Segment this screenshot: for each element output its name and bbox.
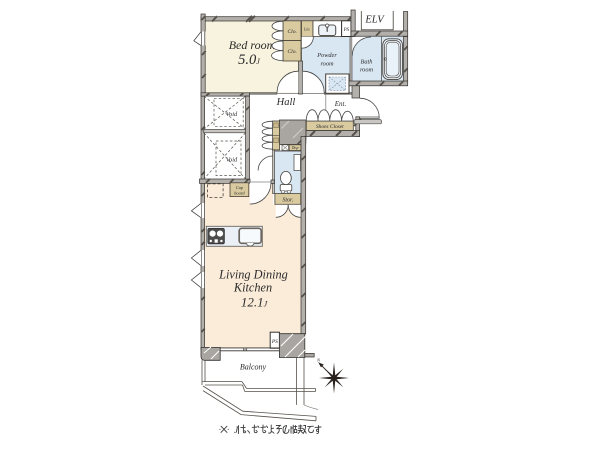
svg-text:Shoes Closet: Shoes Closet [316, 124, 344, 130]
svg-text:board: board [234, 190, 245, 195]
svg-text:12.1J: 12.1J [241, 295, 268, 310]
svg-text:Hall: Hall [276, 97, 296, 108]
svg-text:Living Dining: Living Dining [218, 268, 288, 282]
svg-text:Void: Void [226, 111, 238, 118]
svg-text:Bed room: Bed room [229, 38, 276, 52]
svg-text:Clo.: Clo. [287, 29, 296, 35]
svg-text:Powder: Powder [316, 52, 337, 59]
svg-text:Balcony: Balcony [240, 363, 267, 372]
svg-text:PS: PS [271, 339, 278, 345]
svg-text:Void: Void [226, 157, 238, 164]
svg-text:room: room [360, 67, 374, 74]
svg-text:Kitchen: Kitchen [233, 281, 272, 295]
svg-text:Bath: Bath [361, 59, 373, 66]
svg-text:Cup: Cup [236, 185, 244, 190]
svg-text:Disp: Disp [291, 146, 299, 150]
svg-text:Lin.: Lin. [303, 27, 311, 32]
svg-text:room: room [320, 61, 334, 68]
svg-text:PS: PS [343, 28, 350, 33]
svg-text:Stor.: Stor. [282, 198, 293, 204]
svg-text:Clo.: Clo. [287, 49, 296, 55]
svg-text:ELV: ELV [364, 15, 385, 26]
svg-text:Ent.: Ent. [334, 100, 347, 108]
